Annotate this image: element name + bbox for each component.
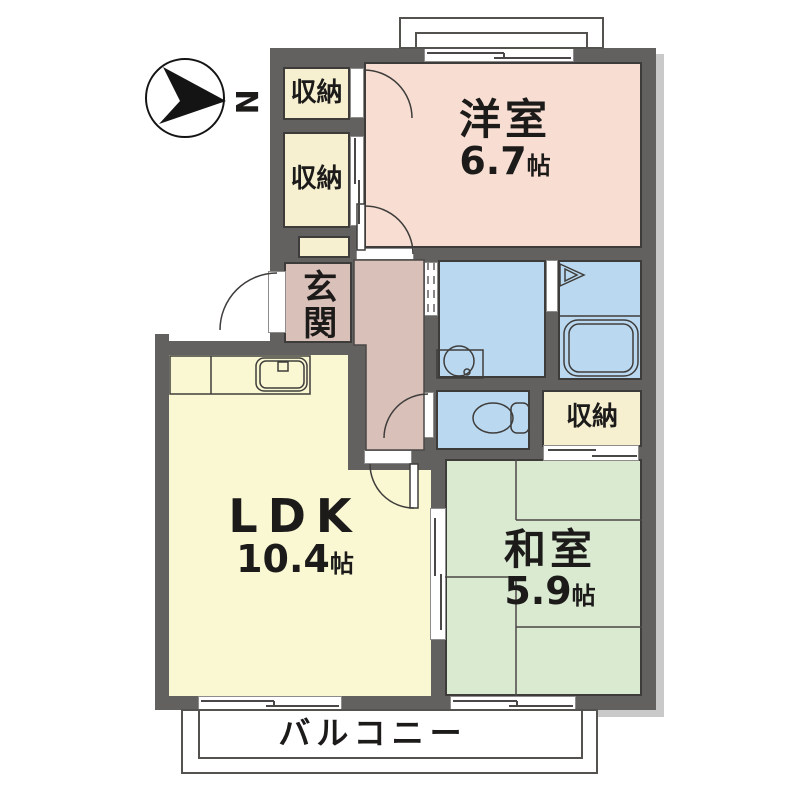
western-room-label: 洋室 6.7帖 (395, 98, 615, 182)
closet-mid-label: 収納 (283, 166, 350, 193)
western-room-name: 洋室 (395, 98, 615, 142)
room-washroom (438, 260, 546, 378)
wall-left-lower (155, 334, 169, 710)
ldk-name: LDK (185, 492, 405, 540)
upper-eave (400, 18, 603, 48)
compass-north-label: N (229, 86, 261, 118)
room-toilet (436, 390, 530, 450)
shoe-cabinet (298, 236, 350, 258)
ldk-door-opening (364, 450, 412, 464)
ldk-area: 10.4帖 (185, 540, 405, 580)
washitsu-window (450, 696, 576, 710)
toilet-door-opening (422, 392, 434, 438)
western-room-area: 6.7帖 (395, 142, 615, 182)
closet-east-label: 収納 (542, 404, 642, 431)
balcony-label: バルコニー (253, 717, 493, 751)
north-arrow-icon (146, 59, 226, 137)
entrance-label: 玄関 (298, 268, 334, 342)
western-room-door-opening (356, 248, 414, 260)
japanese-room-area: 5.9帖 (440, 572, 660, 612)
ldk-window (198, 696, 342, 710)
floor-plan: N 洋室 6.7帖 LDK 10.4帖 和室 5.9帖 収納 収納 収納 玄関 … (0, 0, 800, 800)
building-shadow-right (656, 54, 664, 716)
room-bath (558, 260, 642, 380)
closet-top-label: 収納 (283, 80, 350, 107)
ldk-label: LDK 10.4帖 (185, 492, 405, 580)
building-shadow-bottom (597, 710, 664, 717)
bath-door-opening (546, 260, 558, 312)
western-room-window (424, 48, 574, 62)
washroom-entry-opening (424, 262, 438, 316)
closet-mid-sliding-door (350, 136, 364, 226)
japanese-room-label: 和室 5.9帖 (440, 528, 660, 612)
closet-top-door-opening (350, 68, 364, 118)
japanese-room-name: 和室 (440, 528, 660, 572)
entrance-door-opening (268, 271, 286, 333)
closet-east-sliding-door (543, 445, 639, 461)
